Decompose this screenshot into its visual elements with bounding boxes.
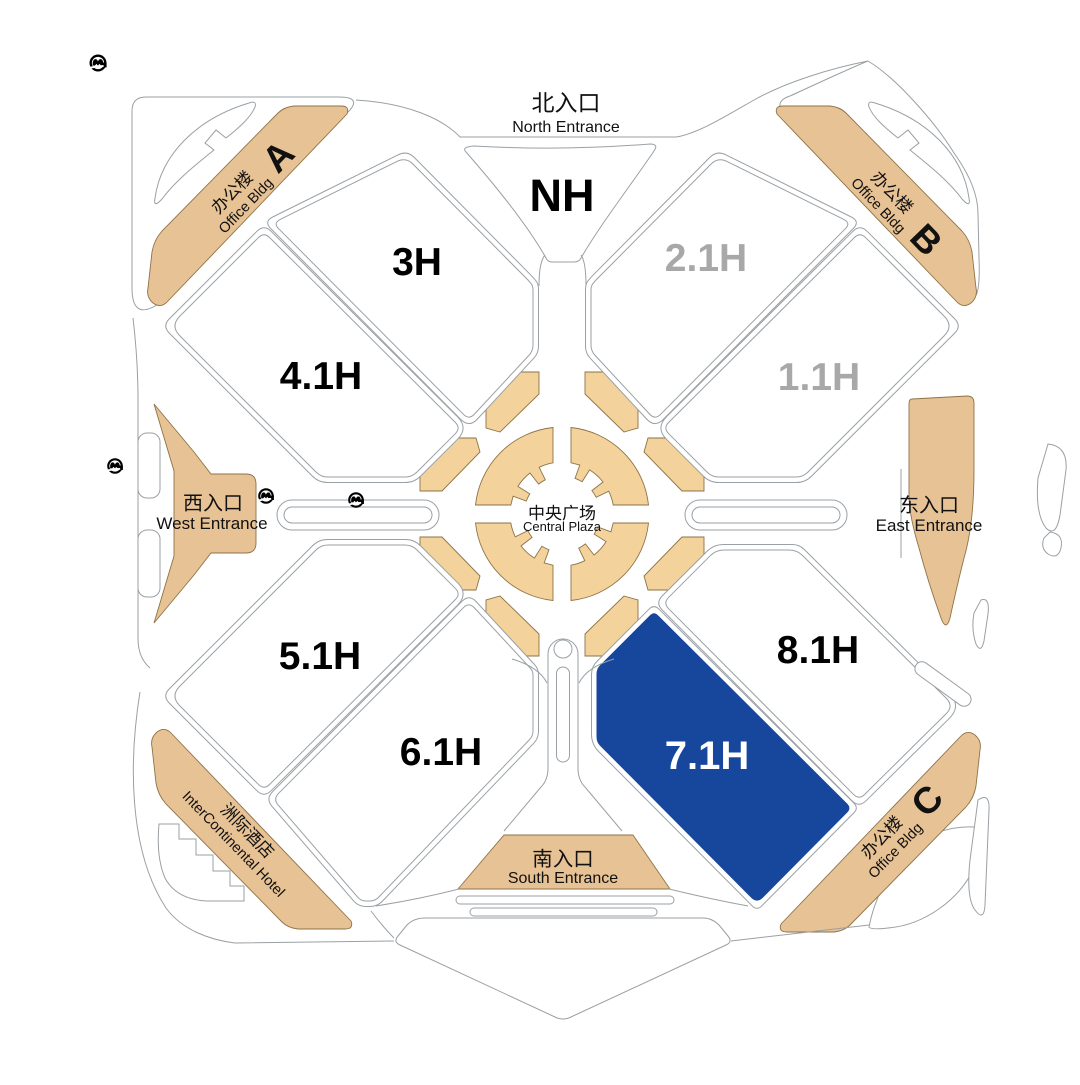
svg-text:8.1H: 8.1H xyxy=(777,629,859,672)
svg-text:7.1H: 7.1H xyxy=(665,734,750,778)
svg-text:South Entrance: South Entrance xyxy=(508,870,618,887)
svg-text:4.1H: 4.1H xyxy=(280,355,362,398)
svg-text:West Entrance: West Entrance xyxy=(156,514,267,533)
svg-text:5.1H: 5.1H xyxy=(279,635,361,678)
svg-text:3H: 3H xyxy=(392,241,442,284)
svg-text:1.1H: 1.1H xyxy=(778,356,860,399)
svg-text:Central Plaza: Central Plaza xyxy=(523,519,602,534)
svg-text:NH: NH xyxy=(530,170,595,221)
svg-text:6.1H: 6.1H xyxy=(400,731,482,774)
svg-text:2.1H: 2.1H xyxy=(665,237,747,280)
svg-text:East Entrance: East Entrance xyxy=(876,516,983,535)
svg-text:North Entrance: North Entrance xyxy=(512,119,620,136)
